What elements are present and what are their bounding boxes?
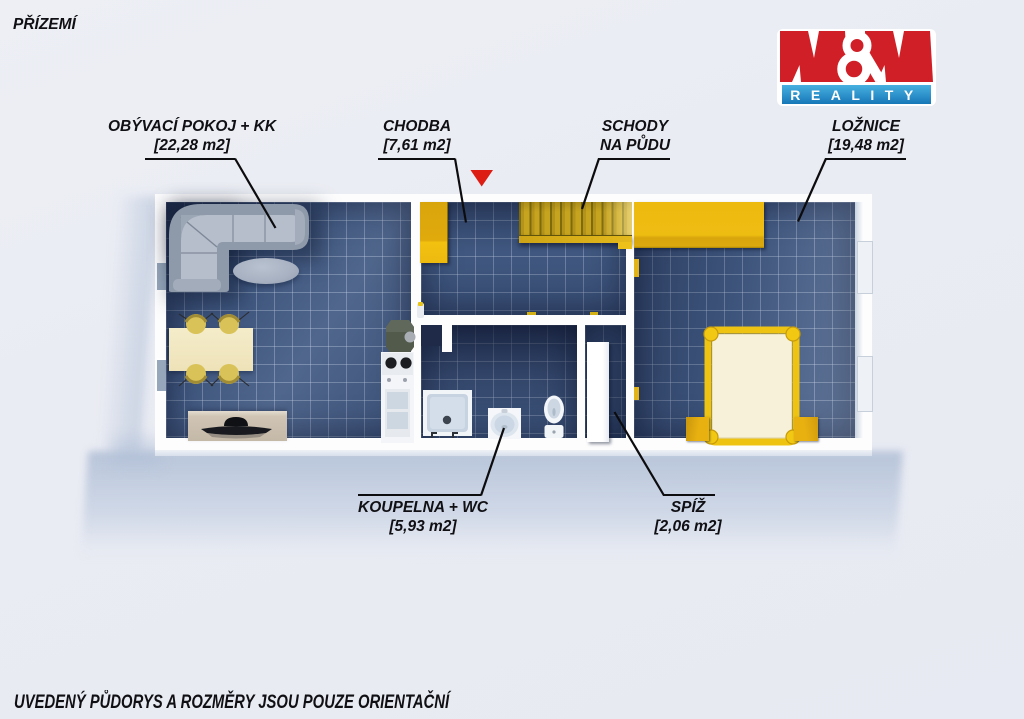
svg-text:REALITY: REALITY (790, 87, 923, 103)
